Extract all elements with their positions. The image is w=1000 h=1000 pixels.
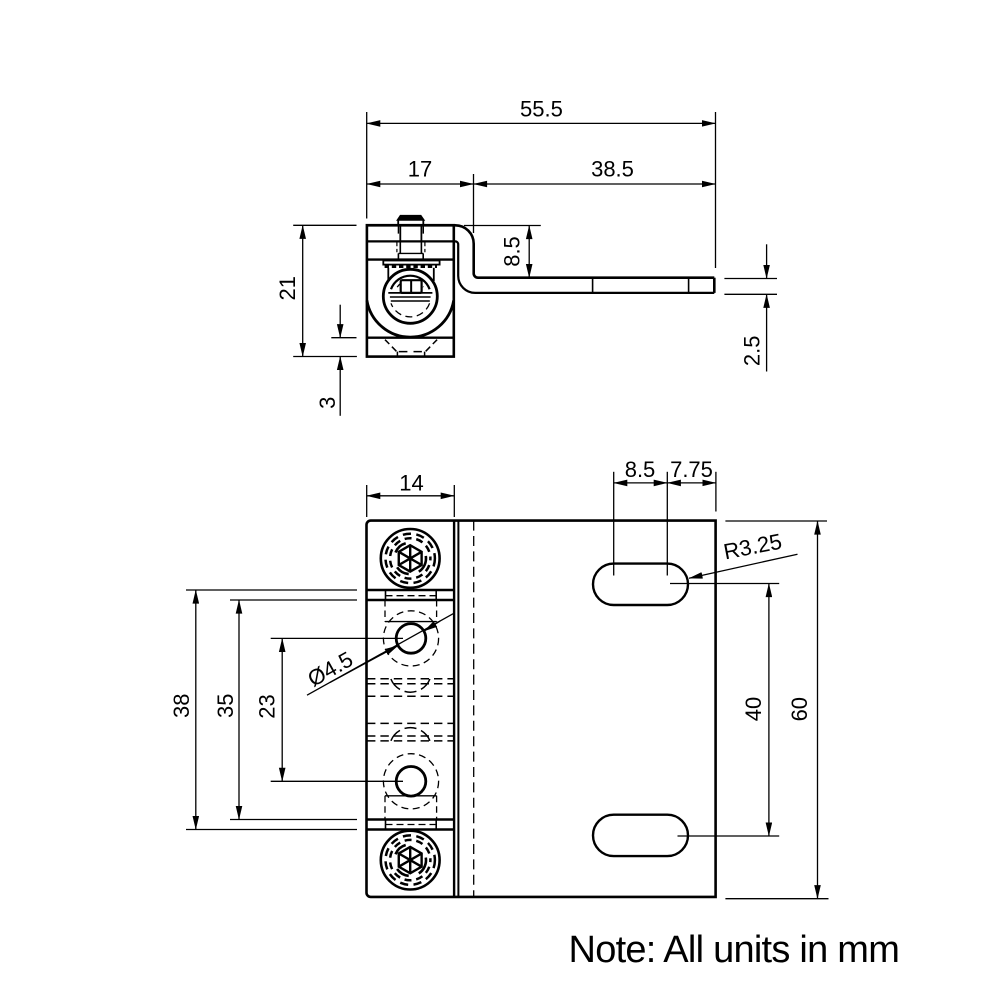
svg-text:35: 35 <box>213 694 238 718</box>
svg-text:Note: All units in mm: Note: All units in mm <box>569 929 900 971</box>
svg-text:60: 60 <box>787 697 812 721</box>
svg-text:55.5: 55.5 <box>520 97 563 122</box>
svg-text:2.5: 2.5 <box>740 336 765 367</box>
svg-text:17: 17 <box>408 157 432 182</box>
svg-text:21: 21 <box>275 276 300 300</box>
svg-text:8.5: 8.5 <box>625 457 656 482</box>
svg-text:7.75: 7.75 <box>670 457 713 482</box>
svg-text:38: 38 <box>169 694 194 718</box>
svg-text:8.5: 8.5 <box>500 236 525 267</box>
svg-text:38.5: 38.5 <box>591 157 634 182</box>
svg-text:14: 14 <box>399 471 423 496</box>
svg-text:40: 40 <box>741 697 766 721</box>
svg-text:23: 23 <box>254 694 279 718</box>
svg-text:3: 3 <box>315 397 340 409</box>
